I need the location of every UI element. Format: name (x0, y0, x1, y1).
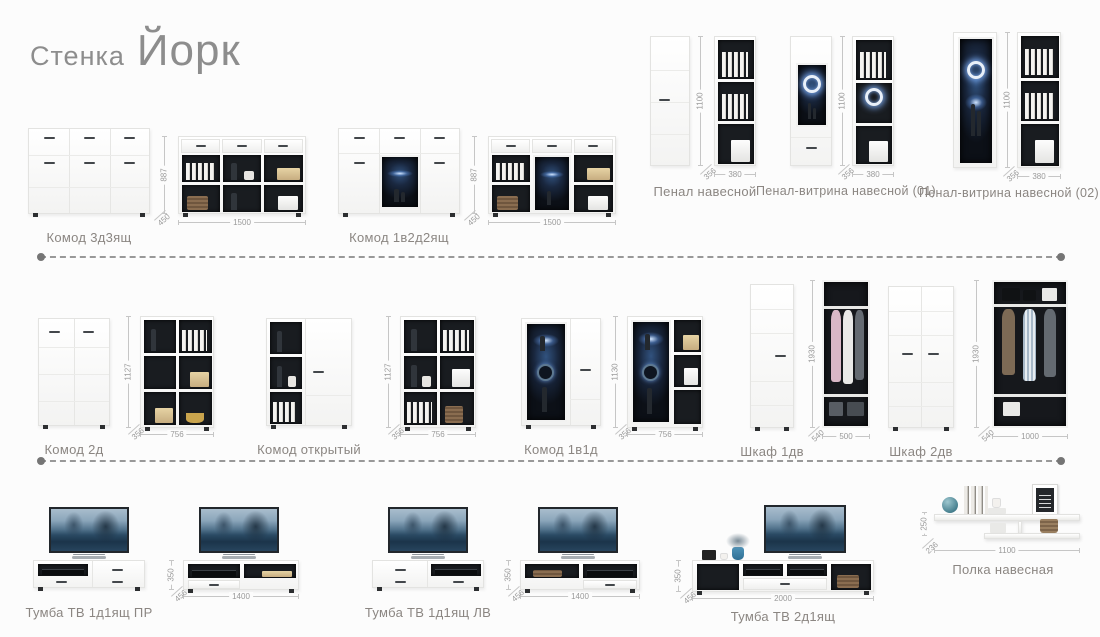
shkaf-1dv-open-view (822, 280, 870, 428)
height-dimension: 350 (678, 560, 679, 592)
tumba-tv-2d-view (692, 560, 874, 592)
product-label: Пенал-витрина навесной (01) (756, 184, 936, 198)
product-card-komod-otkrytyy: 1127 756 356 Комод открытый (266, 314, 478, 458)
product-card-penal-navesnoy: 1100 380 356 Пенал навесной (650, 34, 762, 200)
width-dimension: 1100 (934, 550, 1080, 551)
product-label: Комод открытый (266, 442, 352, 457)
product-card-komod-2d: 1127 756 356 Комод 2д (38, 314, 218, 458)
decor-plant-vase (732, 547, 744, 560)
product-card-tumba-tv-2d: 350 2000 456 Тумба ТВ 2д1ящ (678, 503, 888, 628)
width-dimension: 1500 (178, 222, 306, 223)
komod-1v2d2yashch-open-view (488, 136, 616, 214)
penal-vitrina-02-closed-view (953, 32, 997, 168)
product-card-penal-vitrina-01: 1100 380 356 Пенал-витрина навесной (01) (790, 34, 902, 200)
penal-navesnoy-closed-view (650, 36, 690, 166)
width-dimension: 380 (1017, 176, 1061, 177)
depth-dimension: 540 (808, 426, 827, 444)
width-dimension: 380 (852, 174, 894, 175)
height-dimension: 1127 (388, 316, 389, 428)
product-label: Комод 2д (38, 442, 110, 457)
komod-1v2d2yashch-closed-view (338, 128, 460, 214)
product-card-tumba-tv-lv: 350 1400 456 Тумба ТВ 1д1ящ ЛВ (360, 503, 645, 623)
tv-screen (49, 507, 129, 553)
product-card-komod-1v2d2yashch: 887 1500 450 Комод 1в2д2ящ (338, 126, 630, 252)
width-dimension: 2000 (692, 598, 874, 599)
height-dimension: 250 (924, 512, 925, 536)
product-label: Шкаф 1дв (750, 444, 794, 459)
width-dimension: 500 (822, 436, 870, 437)
tv-screen (764, 505, 846, 553)
penal-navesnoy-open-view (714, 36, 756, 166)
tumba-tv-lv-closed-view (372, 560, 484, 588)
product-label: Комод 1в1д (521, 442, 601, 457)
width-dimension: 1500 (488, 222, 616, 223)
penal-vitrina-02-open-view (1017, 32, 1061, 168)
product-label: Шкаф 2дв (888, 444, 954, 459)
height-dimension: 1100 (1007, 32, 1008, 168)
product-card-komod-1v1d: 1130 756 356 Комод 1в1д (521, 314, 705, 458)
product-label: Тумба ТВ 1д1ящ ЛВ (372, 605, 484, 620)
komod-2d-open-view (140, 316, 214, 428)
depth-dimension: 356 (700, 164, 719, 182)
shkaf-1dv-closed-view (750, 284, 794, 428)
height-dimension: 1100 (700, 36, 701, 166)
product-label: Комод 1в2д2ящ (338, 230, 460, 245)
product-card-penal-vitrina-02: 1100 380 356 Пенал-витрина навесной (02) (953, 32, 1068, 202)
product-card-tumba-tv-pr: 350 1400 456 Тумба ТВ 1д1ящ ПР (33, 503, 301, 623)
tv-screen (538, 507, 618, 553)
height-dimension: 350 (508, 560, 509, 590)
depth-dimension: 450 (154, 210, 173, 228)
width-dimension: 1000 (992, 436, 1068, 437)
width-dimension: 1400 (520, 596, 640, 597)
tumba-tv-pr-closed-view (33, 560, 145, 588)
width-dimension: 756 (140, 434, 214, 435)
led-vitrine-glass (796, 63, 828, 127)
height-dimension: 887 (474, 136, 475, 214)
height-dimension: 1100 (842, 36, 843, 166)
width-dimension: 756 (627, 434, 703, 435)
width-dimension: 1400 (183, 596, 299, 597)
shkaf-2dv-closed-view (888, 286, 954, 428)
tumba-tv-pr-open-view (183, 560, 299, 590)
komod-2d-closed-view (38, 318, 110, 426)
height-dimension: 887 (164, 136, 165, 214)
led-vitrine-glass (525, 322, 567, 422)
penal-vitrina-01-open-view (852, 36, 894, 166)
height-dimension: 1130 (615, 316, 616, 428)
width-dimension: 380 (714, 174, 756, 175)
decor-boxes (702, 550, 716, 560)
komod-3d3yashch-closed-view (28, 128, 150, 214)
komod-1v1d-open-view (627, 316, 703, 428)
decor-wicker-basket (1040, 519, 1058, 533)
depth-dimension: 450 (464, 210, 483, 228)
decor-white-box (990, 523, 1006, 533)
decor-cup (992, 498, 1001, 508)
depth-dimension: 356 (1003, 166, 1022, 184)
title-prefix: Стенка (30, 41, 125, 72)
tv-screen (388, 507, 468, 553)
page-title: Стенка Йорк (30, 26, 241, 76)
product-card-shkaf-1dv: 1930 500 540 Шкаф 1дв (750, 280, 872, 460)
led-vitrine-glass (533, 155, 571, 212)
led-vitrine-glass (958, 37, 994, 165)
row-separator-2 (40, 460, 1062, 462)
product-label: Тумба ТВ 1д1ящ ПР (33, 605, 145, 620)
depth-dimension: 236 (922, 538, 941, 556)
tumba-tv-lv-open-view (520, 560, 640, 590)
product-label: Полка навесная (928, 562, 1078, 577)
shelf-top-board (934, 514, 1080, 521)
product-card-polka-navesnaya: 250 1100 236 Полка навесная (920, 476, 1082, 581)
decor-sphere-vase (942, 497, 958, 513)
led-vitrine-glass (631, 320, 671, 424)
row-separator-1 (40, 256, 1062, 258)
led-vitrine-glass (380, 155, 420, 209)
komod-1v1d-closed-view (521, 318, 601, 426)
tv-screen (199, 507, 279, 553)
shelf-bottom-board (984, 533, 1080, 539)
product-card-shkaf-2dv: 1930 1000 540 Шкаф 2дв (888, 280, 1070, 460)
depth-dimension: 356 (838, 164, 857, 182)
product-label: Тумба ТВ 2д1ящ (692, 609, 874, 624)
width-dimension: 756 (400, 434, 476, 435)
depth-dimension: 540 (978, 426, 997, 444)
product-label: Комод 3д3ящ (28, 230, 150, 245)
decor-cup (720, 553, 728, 560)
komod-otkrytyy-closed-view (266, 318, 352, 426)
height-dimension: 1930 (976, 280, 977, 428)
product-label: Пенал-витрина навесной (02) (923, 186, 1095, 200)
komod-otkrytyy-open-view (400, 316, 476, 428)
product-card-komod-3d3yashch: 887 1500 450 Комод 3д3ящ (28, 126, 320, 252)
komod-3d3yashch-open-view (178, 136, 306, 214)
shkaf-2dv-open-view (992, 280, 1068, 428)
decor-framed-poster (1032, 484, 1058, 516)
height-dimension: 1127 (128, 316, 129, 428)
height-dimension: 350 (171, 560, 172, 590)
height-dimension: 1930 (812, 280, 813, 428)
decor-books (964, 486, 988, 514)
penal-vitrina-01-closed-view (790, 36, 832, 166)
title-main: Йорк (137, 26, 241, 76)
product-label: Пенал навесной (640, 184, 770, 199)
